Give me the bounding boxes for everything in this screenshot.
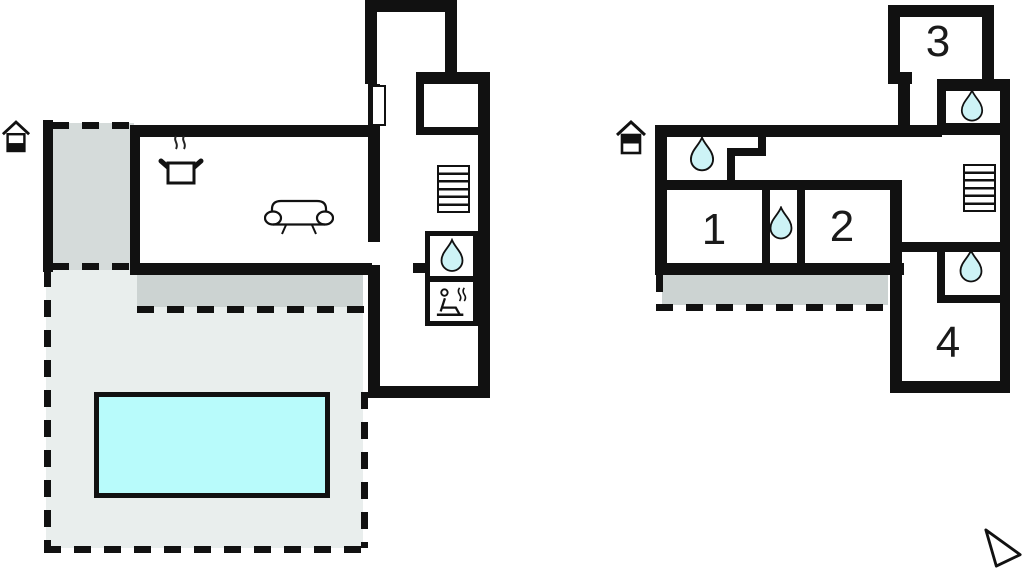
balcony-terrace-area [662, 273, 888, 305]
wall [130, 125, 140, 275]
covered-terrace-dashed-bottom [137, 306, 366, 313]
wall [43, 120, 53, 272]
balcony-dashed-left [656, 275, 663, 304]
sauna-box [425, 277, 478, 326]
wall [937, 295, 1010, 303]
wall [365, 0, 457, 12]
wall [888, 5, 900, 81]
floor-plan-page: 1 2 3 4 [0, 0, 1024, 571]
room-label-3: 3 [918, 16, 958, 68]
north-arrow-icon [983, 527, 1023, 569]
stairs-icon [437, 165, 470, 213]
wall [365, 0, 377, 84]
entry-area [46, 123, 134, 270]
wall [445, 0, 457, 80]
wall [655, 180, 902, 190]
wall [797, 180, 805, 275]
swimming-pool [94, 392, 330, 498]
water-drop-icon [688, 136, 716, 174]
water-drop-icon [768, 206, 794, 242]
wall [937, 123, 1010, 135]
room-label-4: 4 [928, 317, 968, 369]
entry-dashed-top [52, 122, 132, 129]
wall [982, 5, 994, 90]
window-marker [371, 85, 386, 126]
cooking-pot-icon [154, 132, 208, 188]
wall [890, 381, 1010, 393]
terrace-dashed-bottom [44, 546, 370, 553]
wall [758, 130, 766, 156]
wall [416, 127, 490, 135]
wall [890, 180, 902, 393]
bathroom-box [425, 231, 478, 281]
sofa-icon [264, 192, 334, 236]
wall [655, 263, 904, 275]
wall [655, 125, 667, 275]
wall [368, 265, 380, 398]
wall [368, 386, 490, 398]
terrace-dashed-left [44, 270, 51, 553]
terrace-dashed-right [361, 392, 368, 548]
water-drop-icon [959, 89, 985, 124]
room-label-1: 1 [694, 204, 734, 256]
house-first-floor-icon [616, 119, 646, 157]
water-drop-icon [958, 249, 984, 285]
entry-dashed-bottom [52, 263, 132, 270]
house-ground-floor-icon [2, 118, 30, 156]
wall [478, 72, 490, 398]
wall [368, 125, 380, 242]
wall [898, 76, 910, 129]
stairs-icon [963, 164, 996, 212]
room-label-2: 2 [822, 201, 862, 253]
sauna-icon [433, 285, 471, 319]
wall [130, 263, 372, 275]
covered-terrace-area [137, 271, 363, 307]
wall [893, 242, 1005, 252]
water-drop-icon [439, 238, 465, 275]
balcony-dashed-bottom [656, 304, 892, 311]
